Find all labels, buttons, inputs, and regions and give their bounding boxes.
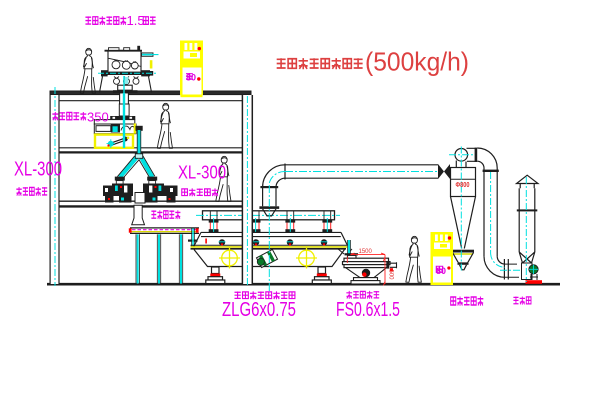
svg-text:80: 80	[186, 73, 196, 83]
svg-text:Φ800: Φ800	[456, 182, 470, 189]
svg-text:ZLG6x0.75: ZLG6x0.75	[222, 299, 296, 321]
svg-text:500: 500	[388, 270, 394, 281]
svg-text:FS0.6x1.5: FS0.6x1.5	[336, 299, 400, 321]
svg-text:80: 80	[436, 266, 446, 276]
svg-text:350: 350	[87, 110, 109, 125]
svg-text:XL-300: XL-300	[14, 159, 62, 181]
svg-text:1500: 1500	[359, 249, 373, 255]
svg-text:XL-300: XL-300	[178, 162, 226, 182]
svg-text:1.5: 1.5	[127, 13, 145, 28]
svg-text:(500kg/h): (500kg/h)	[365, 47, 469, 77]
